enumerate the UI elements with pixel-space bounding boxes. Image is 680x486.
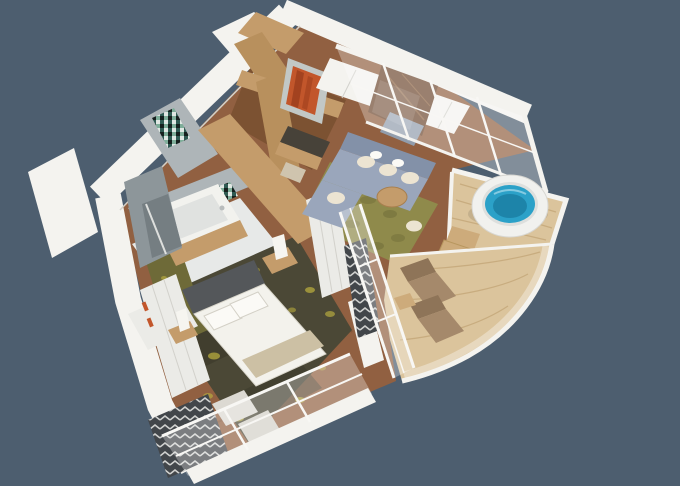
coffee-table — [377, 187, 407, 207]
rug-blot — [391, 234, 405, 242]
dot — [325, 311, 335, 317]
sofa-pillow — [370, 151, 382, 159]
dot — [208, 353, 220, 360]
sofa-cushion — [401, 172, 419, 184]
tub-faucet — [220, 206, 225, 211]
dot — [305, 287, 315, 293]
pouf — [406, 221, 422, 232]
suite-illustration: 3D isometric cutaway rendering of a hote… — [0, 0, 680, 486]
jacuzzi-water-deep — [493, 194, 527, 218]
rug-blot — [383, 210, 397, 218]
sofa-pillow — [392, 159, 404, 167]
sofa-cushion — [327, 192, 345, 204]
floorplan-render: 3D isometric cutaway rendering of a hote… — [0, 0, 680, 486]
